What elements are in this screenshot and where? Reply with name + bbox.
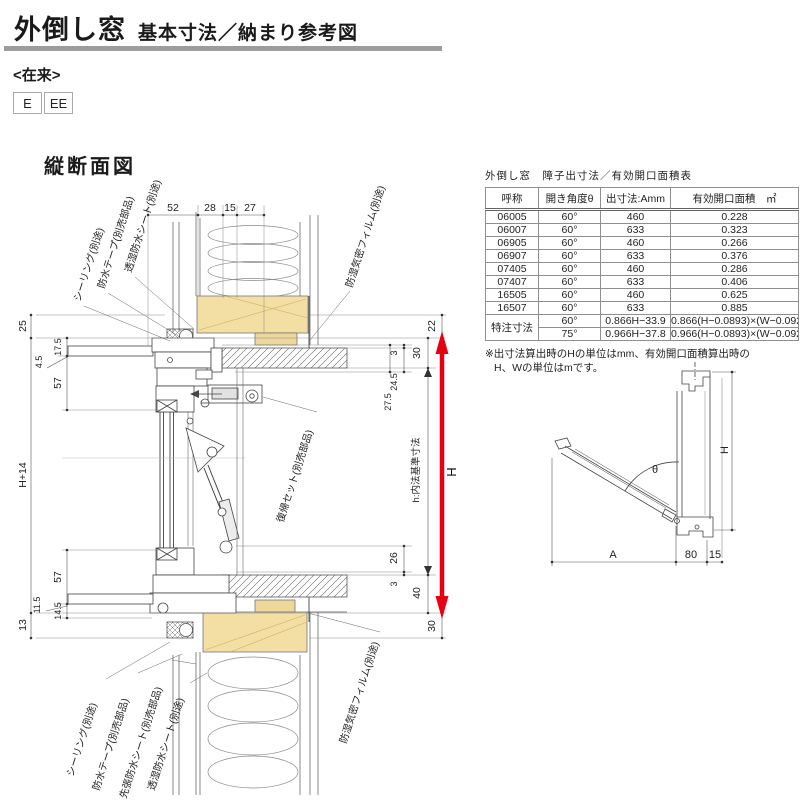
- dim-13: 13: [17, 619, 29, 631]
- col-header-area: 有効開口面積 ㎡: [671, 188, 799, 210]
- dim-3-bottom: 3: [389, 581, 399, 586]
- construction-type-label: <在来>: [13, 64, 61, 85]
- cell-area: 0.323: [671, 224, 799, 237]
- cell-projection: 460: [601, 210, 671, 224]
- sill-profile: [153, 575, 229, 593]
- page-title-sub: 基本寸法／納まり参考図: [138, 23, 358, 44]
- label-sealing-bottom: シーリング(別途): [63, 701, 99, 778]
- label-H: H: [719, 446, 731, 454]
- col-header-name: 呼称: [486, 188, 539, 210]
- cell-projection: 0.966H−37.8: [601, 328, 671, 341]
- frame-head-profile: [682, 371, 710, 391]
- dim-27: 27: [244, 202, 256, 214]
- window-frame-section: [62, 338, 262, 613]
- page-title: 外倒し窓基本寸法／納まり参考図: [14, 8, 358, 47]
- cell-projection: 460: [601, 237, 671, 250]
- cell-angle: 60°: [539, 276, 601, 289]
- dim-4-5: 4.5: [34, 356, 44, 369]
- return-set-hardware: [190, 385, 262, 407]
- part-labels: シーリング(別途) 防水テープ(別売部品) 透湿防水シート(別途) 防湿気密フィ…: [63, 178, 387, 800]
- dim-15: 15: [224, 202, 236, 214]
- cell-projection: 633: [601, 276, 671, 289]
- wood-packer-bottom: [255, 600, 295, 612]
- table-row: 1650560°4600.625: [486, 289, 799, 302]
- dim-24-5: 24.5: [389, 373, 399, 391]
- spec-table-title: 外倒し窓 障子出寸法／有効開口面積表: [485, 168, 799, 183]
- table-row: 0690760°6330.376: [486, 250, 799, 263]
- label-15: 15: [709, 549, 721, 561]
- stay-mechanism: [186, 412, 239, 546]
- spec-table-block: 外倒し窓 障子出寸法／有効開口面積表 呼称 開き角度θ 出寸法:Amm 有効開口…: [485, 168, 799, 375]
- cell-angle: 60°: [539, 263, 601, 276]
- type-code-ee: EE: [44, 92, 73, 114]
- title-rule: [4, 46, 442, 51]
- table-row: 0600760°6330.323: [486, 224, 799, 237]
- h-dim-arrow-bottom: [424, 566, 432, 575]
- cell-name: 06905: [486, 237, 539, 250]
- cell-projection: 633: [601, 250, 671, 263]
- wood-sill-block: [203, 612, 307, 652]
- dim-17-5: 17.5: [53, 338, 63, 356]
- cell-area: 0.406: [671, 276, 799, 289]
- backer-rod-bottom: [180, 624, 193, 637]
- table-row: 0740760°6330.406: [486, 276, 799, 289]
- wood-packer-top: [255, 333, 297, 345]
- dim-27-5: 27.5: [383, 393, 393, 411]
- cell-name: 07405: [486, 263, 539, 276]
- dim-25: 25: [17, 320, 29, 332]
- cell-area: 0.885: [671, 302, 799, 315]
- table-row-custom: 特注寸法60°0.866H−33.90.866(H−0.0893)×(W−0.0…: [486, 315, 799, 328]
- cell-projection: 633: [601, 302, 671, 315]
- label-A: A: [609, 549, 617, 561]
- insulation-batt-bottom: [208, 657, 298, 788]
- cell-angle: 60°: [539, 250, 601, 263]
- opening-angle-diagram: θ H A 80 15: [540, 360, 800, 610]
- spec-table: 呼称 開き角度θ 出寸法:Amm 有効開口面積 ㎡ 0600560°4600.2…: [485, 187, 799, 341]
- interior-casing-bottom: [68, 594, 153, 604]
- table-row: 0600560°4600.228: [486, 210, 799, 224]
- cell-name: 16505: [486, 289, 539, 302]
- cell-angle: 60°: [539, 289, 601, 302]
- label-sealing-top: シーリング(別途): [70, 226, 106, 303]
- label-theta: θ: [652, 464, 658, 476]
- cell-angle: 60°: [539, 210, 601, 224]
- cell-area: 0.966(H−0.0893)×(W−0.092): [671, 328, 799, 341]
- cell-name: 16507: [486, 302, 539, 315]
- cell-name: 06005: [486, 210, 539, 224]
- interior-board-top: [222, 348, 347, 368]
- dimension-lines: [31, 215, 442, 638]
- glazing-unit: [160, 412, 174, 550]
- table-row: 0740560°4600.286: [486, 263, 799, 276]
- dim-40: 40: [411, 587, 423, 599]
- cell-name: 06007: [486, 224, 539, 237]
- table-row: 0690560°4600.266: [486, 237, 799, 250]
- insulation-batt-top: [208, 226, 298, 298]
- label-vapor-film-bottom: 防湿気密フィルム(別途): [336, 640, 381, 745]
- cell-area: 0.286: [671, 263, 799, 276]
- dim-30-top: 30: [411, 347, 423, 359]
- dim-11-5: 11.5: [32, 597, 42, 614]
- open-sash: [555, 438, 680, 524]
- page-title-main: 外倒し窓: [14, 15, 126, 45]
- interior-casing-top: [68, 346, 153, 356]
- cell-area: 0.376: [671, 250, 799, 263]
- cell-area: 0.866(H−0.0893)×(W−0.092): [671, 315, 799, 328]
- dim-30-bottom: 30: [426, 620, 438, 632]
- cell-area: 0.228: [671, 210, 799, 224]
- dimension-dots: [31, 215, 442, 638]
- cell-area: 0.266: [671, 237, 799, 250]
- dim-22: 22: [426, 320, 438, 332]
- cell-name: 07407: [486, 276, 539, 289]
- cell-projection: 0.866H−33.9: [601, 315, 671, 328]
- label-return-set: 復帰セット(別売部品): [273, 428, 315, 524]
- type-code-badges: E EE: [13, 92, 75, 114]
- cell-area: 0.625: [671, 289, 799, 302]
- label-vapor-film-top: 防湿気密フィルム(別途): [342, 184, 387, 289]
- label-80: 80: [685, 549, 697, 561]
- dim-3-top: 3: [389, 350, 399, 355]
- cell-name: 06907: [486, 250, 539, 263]
- cell-angle: 60°: [539, 237, 601, 250]
- col-header-angle: 開き角度θ: [539, 188, 601, 210]
- cell-custom-name: 特注寸法: [486, 315, 539, 341]
- dim-h14: H+14: [17, 462, 29, 488]
- vertical-section-drawing: 52 28 15 27 25 17.5 4.5 57 H+14 57 11.5 …: [0, 140, 480, 800]
- cell-projection: 460: [601, 263, 671, 276]
- cell-projection: 460: [601, 289, 671, 302]
- catalog-page: 外倒し窓基本寸法／納まり参考図 <在来> E EE 縦断面図: [0, 0, 800, 800]
- type-code-e: E: [13, 92, 42, 114]
- cell-angle: 60°: [539, 224, 601, 237]
- dim-14-5: 14.5: [53, 602, 63, 620]
- label-breathable-sheet-top: 透湿防水シート(別途): [121, 178, 163, 274]
- cell-projection: 633: [601, 224, 671, 237]
- dim-28: 28: [204, 202, 216, 214]
- cell-angle: 75°: [539, 328, 601, 341]
- dim-26: 26: [388, 552, 400, 564]
- dim-H-label: H: [444, 467, 459, 476]
- dim-57-top: 57: [52, 377, 64, 389]
- cell-angle: 60°: [539, 302, 601, 315]
- extension-lines: [36, 205, 446, 638]
- interior-board-bottom: [222, 575, 347, 597]
- dim-57-bottom: 57: [52, 571, 64, 583]
- dim-h-inner-label: h:内法基準寸法: [410, 438, 422, 503]
- dim-52: 52: [167, 202, 179, 214]
- spec-table-header-row: 呼称 開き角度θ 出寸法:Amm 有効開口面積 ㎡: [486, 188, 799, 210]
- col-header-projection: 出寸法:Amm: [601, 188, 671, 210]
- cell-angle: 60°: [539, 315, 601, 328]
- h-dim-arrow-top: [424, 368, 432, 377]
- table-row: 1650760°6330.885: [486, 302, 799, 315]
